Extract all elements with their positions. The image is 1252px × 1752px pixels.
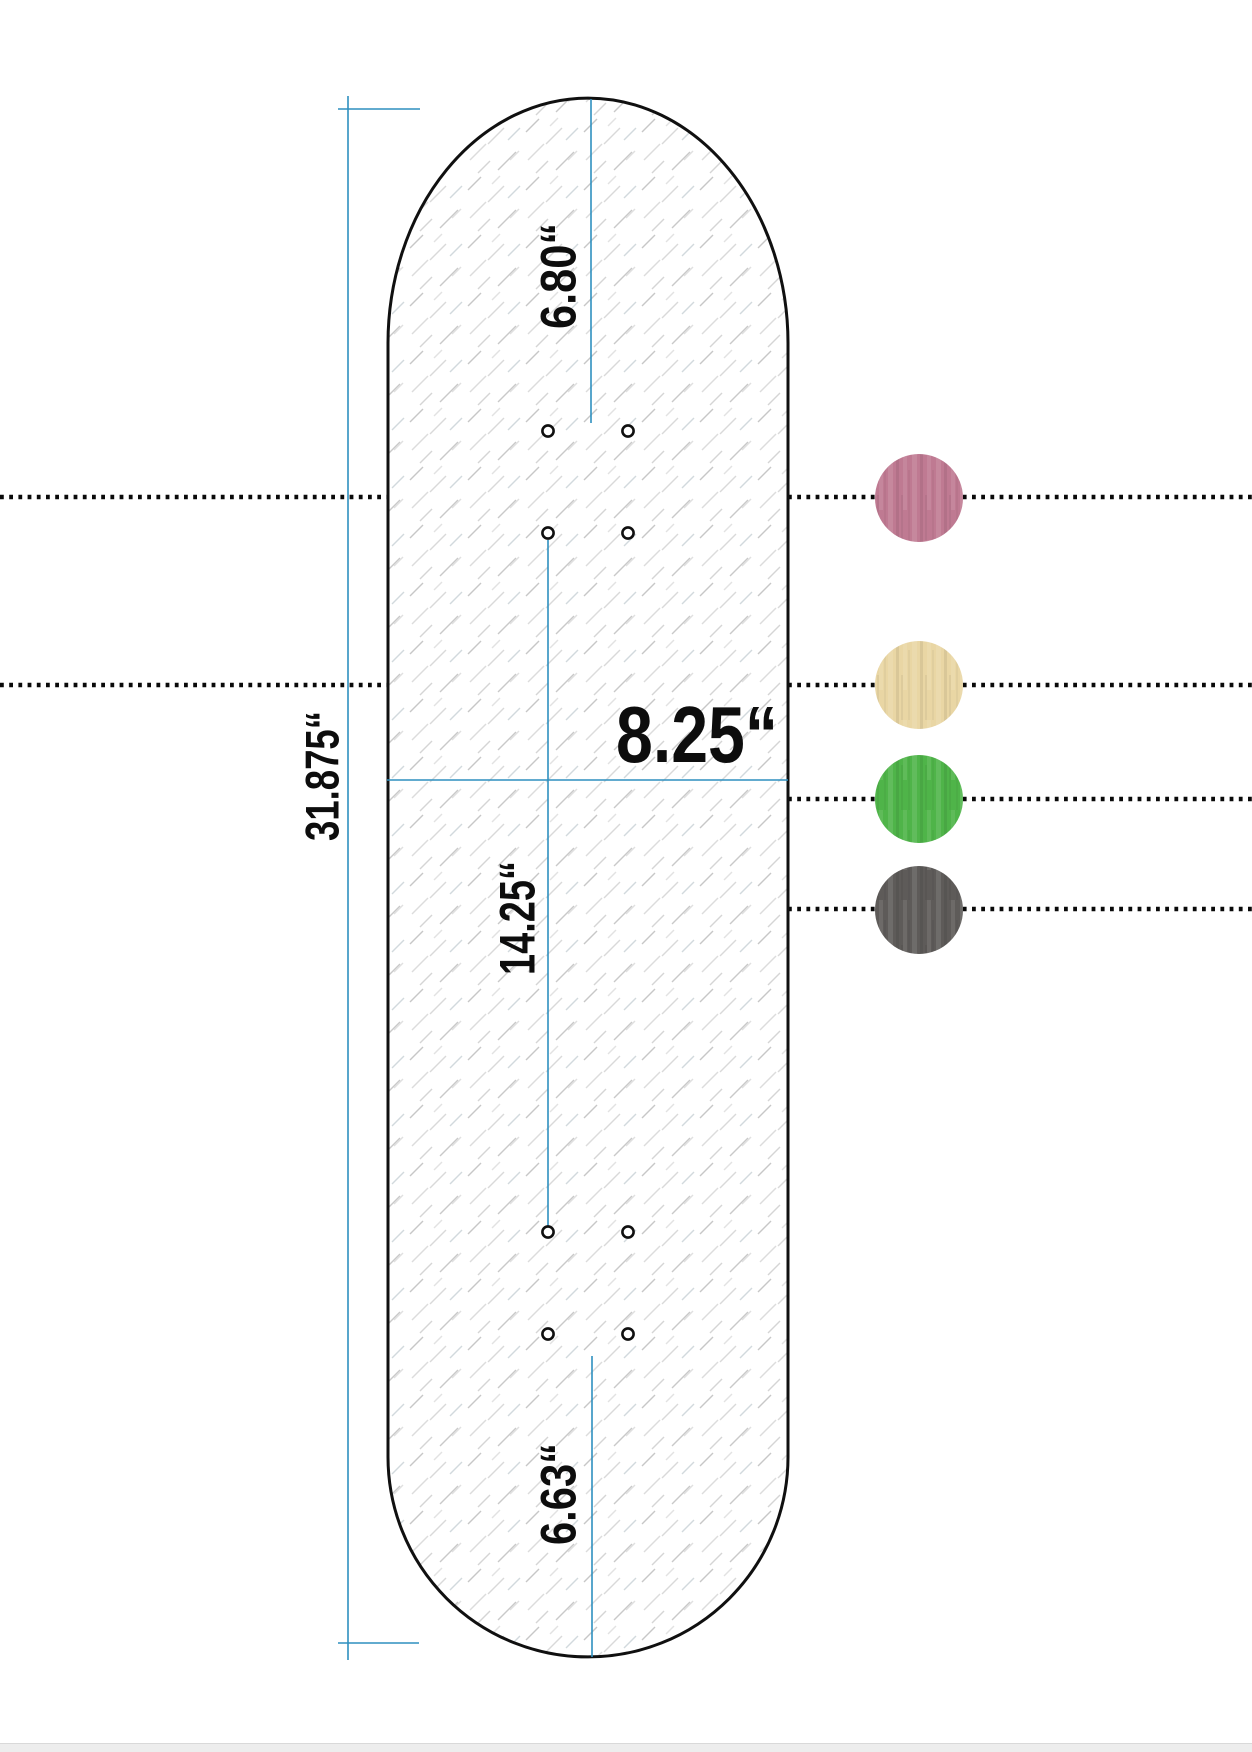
swatch-green-stain[interactable] (875, 755, 963, 843)
rear-truck-hole (542, 1328, 553, 1339)
swatch-green-grain (875, 755, 963, 843)
front-truck-hole (542, 425, 553, 436)
length-dimension-label: 31.875“ (295, 711, 348, 841)
swatch-natural-grain (875, 641, 963, 729)
nose-dimension-label: 6.80“ (531, 223, 587, 329)
swatch-natural-wood[interactable] (875, 641, 963, 729)
deck-shape (388, 98, 788, 1657)
swatch-black-stain[interactable] (875, 866, 963, 954)
deck-outline (388, 98, 788, 1657)
footer-strip-fill (0, 1744, 1252, 1752)
wheelbase-dimension-label: 14.25“ (490, 861, 546, 975)
swatch-pink-grain (875, 454, 963, 542)
front-truck-hole (622, 527, 633, 538)
swatch-pink-stain[interactable] (875, 454, 963, 542)
tail-dimension-label: 6.63“ (531, 1443, 587, 1545)
front-truck-hole (542, 527, 553, 538)
diagram-canvas: 6.80“ 31.875“ 14.25“ 6.63“ 8.25“ (0, 0, 1252, 1752)
rear-truck-hole (622, 1226, 633, 1237)
swatch-black-grain (875, 866, 963, 954)
rear-truck-hole (622, 1328, 633, 1339)
front-truck-hole (622, 425, 633, 436)
width-dimension-label: 8.25“ (616, 690, 778, 779)
rear-truck-hole (542, 1226, 553, 1237)
color-swatches (875, 454, 963, 954)
footer-strip (0, 1744, 1252, 1752)
skateboard-deck-spec-diagram: 6.80“ 31.875“ 14.25“ 6.63“ 8.25“ (0, 0, 1252, 1752)
